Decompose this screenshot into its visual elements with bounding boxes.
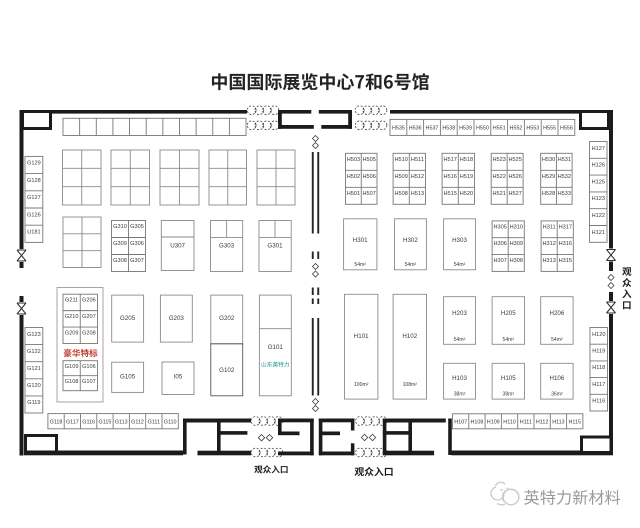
svg-text:H530: H530 (542, 157, 555, 163)
svg-text:H120: H120 (592, 332, 605, 338)
svg-text:G126: G126 (27, 212, 41, 218)
svg-text:54m²: 54m² (454, 337, 466, 343)
svg-text:H206: H206 (550, 310, 565, 317)
svg-text:54m²: 54m² (454, 262, 466, 268)
svg-text:G310: G310 (113, 224, 127, 230)
svg-text:H205: H205 (501, 310, 516, 317)
svg-text:H105: H105 (501, 375, 516, 382)
svg-text:H310: H310 (510, 224, 523, 230)
svg-text:G202: G202 (219, 315, 235, 322)
svg-text:I05: I05 (174, 374, 183, 381)
svg-text:54m²: 54m² (405, 262, 417, 268)
svg-text:H116: H116 (592, 399, 605, 405)
svg-text:H513: H513 (411, 191, 424, 197)
svg-text:H111: H111 (520, 420, 532, 426)
svg-text:G107: G107 (82, 379, 96, 385)
svg-text:H536: H536 (409, 126, 422, 132)
svg-text:H306: H306 (493, 241, 506, 247)
svg-text:H118: H118 (592, 365, 605, 371)
svg-text:H552: H552 (510, 126, 523, 132)
svg-text:H108: H108 (471, 420, 484, 426)
svg-text:G122: G122 (27, 349, 41, 355)
svg-text:H506: H506 (362, 174, 375, 180)
svg-text:G118: G118 (50, 419, 63, 425)
svg-text:H308: H308 (510, 258, 523, 264)
svg-text:H528: H528 (542, 191, 555, 197)
svg-text:54m²: 54m² (502, 337, 514, 343)
svg-text:G106: G106 (82, 364, 96, 370)
svg-text:G117: G117 (66, 419, 79, 425)
svg-text:G119: G119 (27, 400, 40, 406)
svg-text:H126: H126 (592, 163, 605, 169)
svg-text:H107: H107 (454, 420, 467, 426)
svg-text:H510: H510 (395, 157, 408, 163)
svg-text:H511: H511 (411, 157, 424, 163)
svg-text:H122: H122 (592, 213, 605, 219)
svg-text:G208: G208 (82, 331, 96, 337)
svg-text:H113: H113 (552, 420, 565, 426)
svg-text:G110: G110 (164, 419, 177, 425)
svg-text:H519: H519 (460, 174, 473, 180)
svg-text:54m²: 54m² (354, 262, 366, 268)
svg-text:H501: H501 (347, 191, 360, 197)
svg-text:H305: H305 (493, 224, 506, 230)
svg-text:H521: H521 (492, 191, 505, 197)
svg-text:G209: G209 (65, 331, 79, 337)
svg-text:H125: H125 (592, 179, 605, 185)
svg-text:G101: G101 (268, 344, 284, 351)
svg-text:G123: G123 (27, 332, 41, 338)
svg-text:G303: G303 (219, 243, 235, 250)
svg-text:G115: G115 (99, 419, 112, 425)
svg-text:H516: H516 (444, 174, 457, 180)
svg-text:H316: H316 (559, 241, 572, 247)
svg-text:G113: G113 (115, 419, 128, 425)
svg-text:G116: G116 (82, 419, 95, 425)
svg-text:H315: H315 (559, 258, 572, 264)
svg-text:H317: H317 (559, 224, 572, 230)
svg-text:H539: H539 (459, 126, 472, 132)
svg-text:H307: H307 (493, 258, 506, 264)
svg-text:G109: G109 (65, 364, 79, 370)
svg-text:H303: H303 (452, 237, 467, 244)
svg-text:G203: G203 (169, 315, 185, 322)
svg-text:H529: H529 (542, 174, 555, 180)
svg-text:H313: H313 (542, 258, 555, 264)
svg-text:G211: G211 (65, 298, 78, 304)
svg-text:G128: G128 (27, 178, 41, 184)
svg-text:G306: G306 (130, 241, 144, 247)
svg-text:H103: H103 (452, 375, 467, 382)
svg-text:G129: G129 (27, 161, 41, 167)
svg-text:108m²: 108m² (403, 382, 418, 388)
svg-text:G112: G112 (131, 419, 144, 425)
svg-text:G307: G307 (130, 258, 144, 264)
svg-text:G102: G102 (219, 367, 235, 374)
svg-text:H117: H117 (592, 382, 605, 388)
svg-text:H535: H535 (392, 126, 405, 132)
svg-text:H517: H517 (444, 157, 457, 163)
svg-text:H502: H502 (347, 174, 360, 180)
svg-text:H311: H311 (543, 224, 556, 230)
svg-text:H522: H522 (492, 174, 505, 180)
svg-text:H109: H109 (487, 420, 500, 426)
svg-text:G120: G120 (27, 383, 41, 389)
svg-text:H302: H302 (403, 237, 418, 244)
svg-text:36m²: 36m² (551, 392, 563, 398)
svg-text:G105: G105 (120, 374, 136, 381)
svg-text:G308: G308 (113, 258, 127, 264)
svg-text:G210: G210 (65, 314, 79, 320)
svg-text:54m²: 54m² (551, 337, 563, 343)
svg-text:G309: G309 (113, 241, 127, 247)
svg-text:H538: H538 (442, 126, 455, 132)
svg-text:G301: G301 (267, 243, 283, 250)
svg-text:H301: H301 (353, 237, 368, 244)
svg-text:H505: H505 (362, 157, 375, 163)
svg-text:G127: G127 (27, 195, 41, 201)
svg-text:H555: H555 (543, 126, 556, 132)
svg-text:G111: G111 (148, 419, 160, 425)
svg-text:H526: H526 (508, 174, 521, 180)
svg-text:H515: H515 (444, 191, 457, 197)
svg-text:G305: G305 (130, 224, 144, 230)
svg-text:38m²: 38m² (454, 392, 466, 398)
svg-text:H123: H123 (592, 196, 605, 202)
svg-text:H121: H121 (592, 230, 605, 236)
svg-text:H518: H518 (460, 157, 473, 163)
svg-text:H537: H537 (426, 126, 439, 132)
svg-text:G205: G205 (120, 315, 136, 322)
svg-text:38m²: 38m² (502, 392, 514, 398)
svg-text:G108: G108 (65, 379, 79, 385)
svg-text:H115: H115 (569, 420, 582, 426)
svg-text:G206: G206 (82, 298, 96, 304)
svg-text:H203: H203 (452, 310, 467, 317)
svg-text:H106: H106 (550, 375, 565, 382)
svg-text:H556: H556 (560, 126, 573, 132)
svg-text:H112: H112 (536, 420, 549, 426)
svg-text:H119: H119 (592, 349, 605, 355)
svg-text:H101: H101 (354, 333, 369, 340)
svg-text:G207: G207 (82, 314, 96, 320)
svg-text:H512: H512 (411, 174, 424, 180)
svg-text:H509: H509 (395, 174, 408, 180)
svg-text:H309: H309 (510, 241, 523, 247)
svg-text:U181: U181 (27, 230, 40, 236)
svg-text:H533: H533 (558, 191, 571, 197)
svg-text:H527: H527 (508, 191, 521, 197)
svg-text:H102: H102 (402, 333, 417, 340)
svg-text:H550: H550 (476, 126, 489, 132)
svg-text:G121: G121 (27, 366, 41, 372)
svg-text:H507: H507 (362, 191, 375, 197)
svg-text:H127: H127 (592, 146, 605, 152)
svg-text:U307: U307 (170, 243, 185, 250)
svg-text:H110: H110 (503, 420, 516, 426)
svg-text:100m²: 100m² (354, 382, 369, 388)
svg-text:H523: H523 (492, 157, 505, 163)
svg-text:H531: H531 (558, 157, 571, 163)
svg-text:H525: H525 (508, 157, 521, 163)
svg-text:H551: H551 (493, 126, 506, 132)
svg-text:H532: H532 (558, 174, 571, 180)
svg-text:H312: H312 (542, 241, 555, 247)
svg-text:H503: H503 (347, 157, 360, 163)
svg-text:H520: H520 (460, 191, 473, 197)
svg-text:H553: H553 (526, 126, 539, 132)
svg-text:H508: H508 (395, 191, 408, 197)
